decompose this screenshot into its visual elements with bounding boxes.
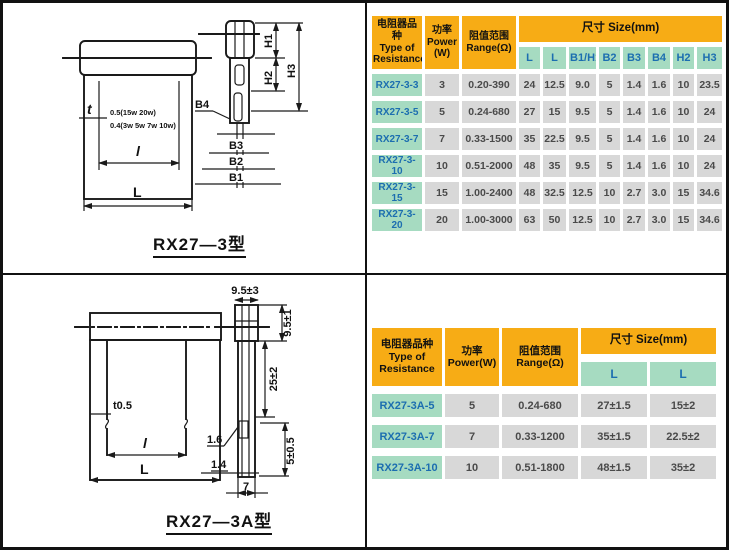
size-subheader-L2: L (543, 47, 566, 69)
value-cell: 24 (697, 101, 722, 123)
size-subheader-L2: L (650, 362, 716, 386)
model-cell: RX27-3-10 (372, 155, 422, 177)
value-cell: 22.5±2 (650, 425, 716, 448)
table-row: RX27-3-550.24-68027159.551.41.61024 (372, 101, 722, 123)
col-header-size: 尺寸 Size(mm) (581, 328, 716, 354)
value-cell: 10 (673, 155, 694, 177)
drawing-caption-rx27-3: RX27—3型 (153, 230, 246, 258)
dim-label-5-05: 5±0.5 (285, 437, 297, 464)
value-cell: 20 (425, 209, 459, 231)
value-cell: 15 (673, 209, 694, 231)
value-cell: 9.5 (569, 101, 596, 123)
note-wattage-2: 0.4(3w 5w 7w 10w) (110, 121, 176, 130)
value-cell: 0.33-1500 (462, 128, 516, 150)
value-cell: 0.33-1200 (502, 425, 578, 448)
dim-label-1-6: 1.6 (207, 434, 222, 446)
table-row: RX27-3-10100.51-200048359.551.41.61024 (372, 155, 722, 177)
size-subheader-L1: L (519, 47, 540, 69)
note-wattage-1: 0.5(15w 20w) (110, 108, 156, 117)
rx27-3-spec-table: 电阻器品种 Type of Resistance 功率 Power (W) 阻值… (369, 11, 725, 236)
table-row: RX27-3-330.20-3902412.59.051.41.61023.5 (372, 74, 722, 96)
value-cell: 0.51-1800 (502, 456, 578, 479)
value-cell: 15±2 (650, 394, 716, 417)
value-cell: 7 (425, 128, 459, 150)
side-view: 9.5±3 9.5±1 25±2 1.6 1.4 5±0.5 (201, 285, 297, 498)
dim-label-25-2: 25±2 (268, 367, 280, 391)
value-cell: 1.00-3000 (462, 209, 516, 231)
dim-label-b2: B2 (229, 156, 243, 168)
value-cell: 34.6 (697, 209, 722, 231)
value-cell: 63 (519, 209, 540, 231)
value-cell: 5 (599, 101, 620, 123)
front-view: t0.5 l L (75, 313, 221, 480)
value-cell: 2.7 (623, 182, 645, 204)
value-cell: 1.4 (623, 128, 645, 150)
value-cell: 32.5 (543, 182, 566, 204)
value-cell: 15 (543, 101, 566, 123)
value-cell: 2.7 (623, 209, 645, 231)
size-subheader-b2: B2 (599, 47, 620, 69)
dim-label-b4: B4 (195, 99, 210, 111)
value-cell: 10 (673, 101, 694, 123)
value-cell: 1.6 (648, 74, 670, 96)
value-cell: 12.5 (569, 209, 596, 231)
value-cell: 24 (697, 155, 722, 177)
value-cell: 12.5 (569, 182, 596, 204)
dim-label-9-5-1: 9.5±1 (282, 309, 294, 336)
value-cell: 50 (543, 209, 566, 231)
col-header-range: 阻值范围 Range(Ω) (502, 328, 578, 386)
dim-label-h3: H3 (286, 64, 298, 78)
value-cell: 24 (697, 128, 722, 150)
value-cell: 15 (673, 182, 694, 204)
value-cell: 27±1.5 (581, 394, 647, 417)
value-cell: 35±2 (650, 456, 716, 479)
col-header-size: 尺寸 Size(mm) (519, 16, 722, 42)
value-cell: 3.0 (648, 182, 670, 204)
value-cell: 0.20-390 (462, 74, 516, 96)
value-cell: 35±1.5 (581, 425, 647, 448)
vertical-divider (365, 3, 367, 547)
table-row: RX27-3A-770.33-120035±1.522.5±2 (372, 425, 716, 448)
value-cell: 10 (673, 74, 694, 96)
table-row: RX27-3-15151.00-24004832.512.5102.73.015… (372, 182, 722, 204)
size-subheader-b1h1: B1/H1 (569, 47, 596, 69)
value-cell: 1.6 (648, 101, 670, 123)
dim-label-1-4: 1.4 (211, 459, 227, 471)
side-view: B3 B2 B1 B4 H1 H2 H3 (195, 21, 308, 188)
table-row: RX27-3A-10100.51-180048±1.535±2 (372, 456, 716, 479)
size-subheader-b4: B4 (648, 47, 670, 69)
dim-label-7: 7 (243, 481, 249, 493)
value-cell: 0.24-680 (462, 101, 516, 123)
dim-label-b1: B1 (229, 172, 243, 184)
model-cell: RX27-3A-7 (372, 425, 442, 448)
value-cell: 0.24-680 (502, 394, 578, 417)
col-header-power: 功率 Power (W) (425, 16, 459, 69)
value-cell: 9.0 (569, 74, 596, 96)
dim-label-h2: H2 (263, 71, 275, 85)
rx27-3-technical-drawing: l t 0.5(15w 20w) 0.4(3w 5w 7w 10w) L (23, 8, 363, 268)
value-cell: 5 (445, 394, 499, 417)
value-cell: 27 (519, 101, 540, 123)
size-subheader-b3: B3 (623, 47, 645, 69)
rx27-3a-spec-table: 电阻器品种 Type of Resistance 功率 Power(W) 阻值范… (369, 320, 719, 487)
dim-label-l-inner: l (143, 435, 148, 451)
value-cell: 1.4 (623, 101, 645, 123)
value-cell: 24 (519, 74, 540, 96)
model-cell: RX27-3-5 (372, 101, 422, 123)
dim-label-L: L (140, 461, 149, 477)
model-cell: RX27-3-20 (372, 209, 422, 231)
value-cell: 0.51-2000 (462, 155, 516, 177)
table-row: RX27-3-20201.00-3000635012.5102.73.01534… (372, 209, 722, 231)
value-cell: 10 (673, 128, 694, 150)
value-cell: 10 (445, 456, 499, 479)
value-cell: 9.5 (569, 128, 596, 150)
value-cell: 22.5 (543, 128, 566, 150)
dim-label-t: t (87, 101, 93, 117)
value-cell: 10 (425, 155, 459, 177)
col-header-type: 电阻器品种 Type of Resistance (372, 328, 442, 386)
col-header-type: 电阻器品种 Type of Resistance (372, 16, 422, 69)
horizontal-divider (3, 273, 726, 275)
value-cell: 1.4 (623, 155, 645, 177)
value-cell: 48 (519, 155, 540, 177)
model-cell: RX27-3A-5 (372, 394, 442, 417)
value-cell: 35 (543, 155, 566, 177)
model-cell: RX27-3-7 (372, 128, 422, 150)
dim-label-t05: t0.5 (113, 400, 132, 412)
col-header-power: 功率 Power(W) (445, 328, 499, 386)
datasheet-page: l t 0.5(15w 20w) 0.4(3w 5w 7w 10w) L (0, 0, 729, 550)
value-cell: 34.6 (697, 182, 722, 204)
value-cell: 12.5 (543, 74, 566, 96)
value-cell: 1.6 (648, 128, 670, 150)
value-cell: 10 (599, 209, 620, 231)
value-cell: 1.6 (648, 155, 670, 177)
dim-label-b3: B3 (229, 140, 243, 152)
dim-label-9-5-3: 9.5±3 (231, 285, 258, 297)
value-cell: 48 (519, 182, 540, 204)
model-cell: RX27-3-3 (372, 74, 422, 96)
model-cell: RX27-3A-10 (372, 456, 442, 479)
drawing-caption-rx27-3a: RX27—3A型 (166, 507, 272, 535)
model-cell: RX27-3-15 (372, 182, 422, 204)
value-cell: 5 (599, 128, 620, 150)
value-cell: 15 (425, 182, 459, 204)
dim-label-L: L (133, 184, 142, 200)
table-row: RX27-3A-550.24-68027±1.515±2 (372, 394, 716, 417)
size-subheader-L1: L (581, 362, 647, 386)
value-cell: 7 (445, 425, 499, 448)
value-cell: 1.4 (623, 74, 645, 96)
front-view: l t 0.5(15w 20w) 0.4(3w 5w 7w 10w) L (63, 41, 211, 211)
value-cell: 9.5 (569, 155, 596, 177)
value-cell: 35 (519, 128, 540, 150)
value-cell: 5 (425, 101, 459, 123)
size-subheader-h3: H3 (697, 47, 722, 69)
value-cell: 5 (599, 155, 620, 177)
dim-label-h1: H1 (263, 34, 275, 48)
value-cell: 5 (599, 74, 620, 96)
dim-label-l-inner: l (136, 143, 141, 159)
value-cell: 3 (425, 74, 459, 96)
value-cell: 10 (599, 182, 620, 204)
value-cell: 23.5 (697, 74, 722, 96)
table-row: RX27-3-770.33-15003522.59.551.41.61024 (372, 128, 722, 150)
value-cell: 3.0 (648, 209, 670, 231)
col-header-range: 阻值范围 Range(Ω) (462, 16, 516, 69)
value-cell: 1.00-2400 (462, 182, 516, 204)
size-subheader-h2: H2 (673, 47, 694, 69)
value-cell: 48±1.5 (581, 456, 647, 479)
